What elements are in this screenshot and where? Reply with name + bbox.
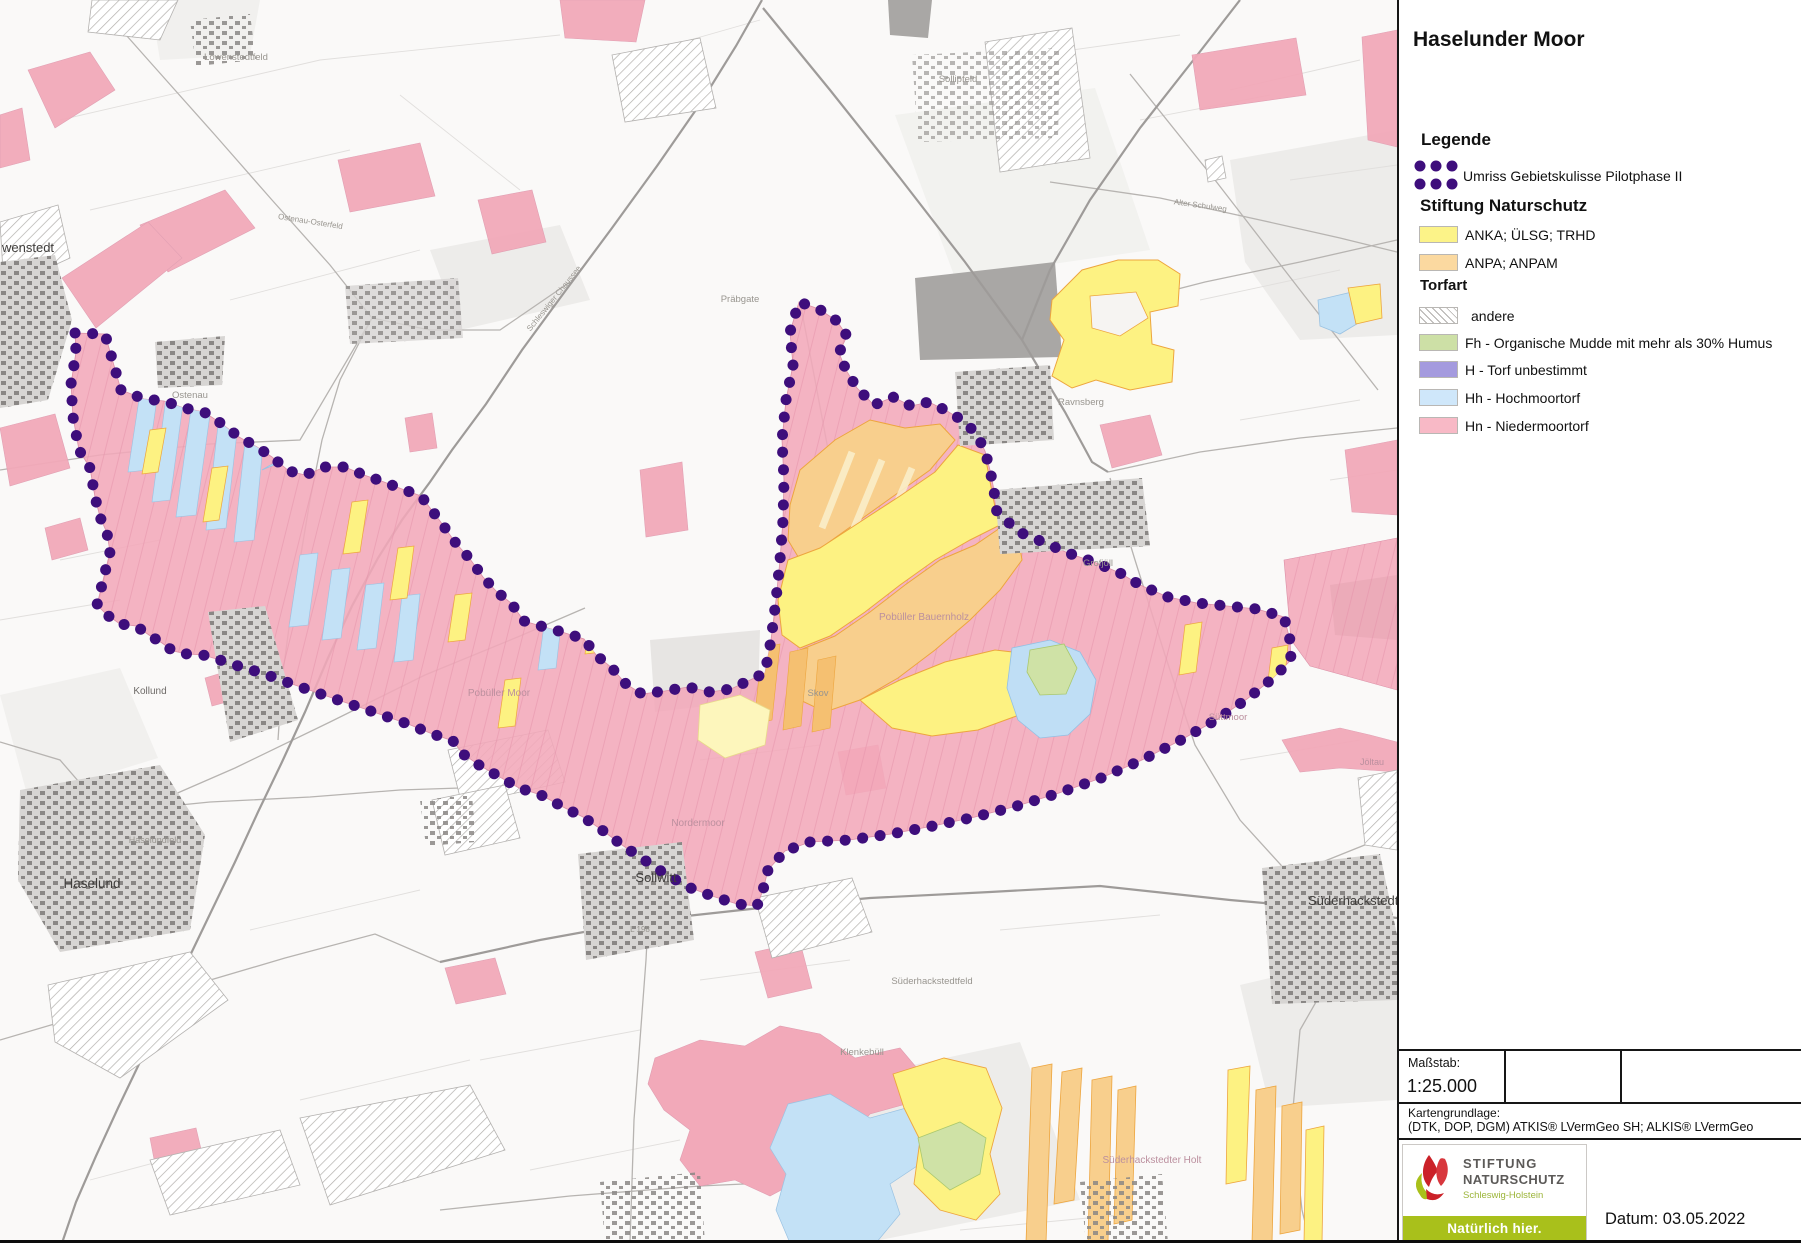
map-label: Skov — [807, 688, 828, 699]
info-panel: Haselunder Moor Legende Umriss Gebietsku… — [1397, 0, 1801, 1243]
hn-label: Hn - Niedermoortorf — [1465, 418, 1589, 434]
basemap-value: (DTK, DOP, DGM) ATKIS® LVermGeo SH; ALKI… — [1408, 1120, 1753, 1134]
map-label: Ostenau — [172, 390, 208, 401]
map-label: wenstedt — [1, 240, 54, 255]
empty-cell-2 — [1622, 1051, 1801, 1102]
map-label: Süderhackstedtfeld — [891, 976, 972, 987]
hh-label: Hh - Hochmoortorf — [1465, 390, 1580, 406]
basemap-row: Kartengrundlage: (DTK, DOP, DGM) ATKIS® … — [1399, 1104, 1801, 1140]
map-label: Klenkebüll — [840, 1047, 884, 1058]
map-label: Süderhackstedt — [1308, 893, 1397, 908]
map-label: Jöltau — [1360, 757, 1384, 767]
date-label: Datum: 03.05.2022 — [1605, 1210, 1745, 1229]
map-label: L 198 — [630, 925, 650, 934]
map-label: Pobüller Moor — [468, 688, 531, 699]
empty-cell-1 — [1506, 1051, 1622, 1102]
village-sollwitt — [578, 842, 694, 960]
map-area: wenstedtLöwenstedtfeldOstenauPräbgateSol… — [0, 0, 1397, 1243]
map-label: Sollipfeld — [939, 74, 978, 85]
scale-cell: Maßstab: 1:25.000 — [1399, 1051, 1506, 1102]
anpa-swatch — [1419, 254, 1458, 271]
map-label: Nordermoor — [671, 818, 725, 829]
legend-outline-label: Umriss Gebietskulisse Pilotphase II — [1463, 168, 1682, 184]
scale-value: 1:25.000 — [1407, 1076, 1477, 1097]
fh-label: Fh - Organische Mudde mit mehr als 30% H… — [1465, 335, 1772, 351]
map-label: Süttmoor — [1209, 712, 1248, 723]
map-label: Süderhackstedter Holt — [1103, 1155, 1202, 1166]
andere-label: andere — [1471, 308, 1515, 324]
boundary-dots-icon — [1412, 156, 1460, 194]
logo-line1: STIFTUNG — [1463, 1156, 1538, 1171]
village-suederhackstedt — [1262, 854, 1397, 1004]
map-label: Haselund — [63, 876, 120, 891]
tulip-leaf-icon — [1410, 1151, 1454, 1209]
scale-label: Maßstab: — [1408, 1056, 1460, 1070]
logo-line3: Schleswig-Holstein — [1463, 1190, 1543, 1201]
stiftung-naturschutz-logo: STIFTUNG NATURSCHUTZ Schleswig-Holstein … — [1402, 1144, 1587, 1242]
page-title: Haselunder Moor — [1413, 28, 1585, 52]
scale-row: Maßstab: 1:25.000 — [1399, 1051, 1801, 1104]
basemap-label: Kartengrundlage: — [1408, 1106, 1500, 1120]
h-label: H - Torf unbestimmt — [1465, 362, 1587, 378]
map-label: Sollwitt — [635, 870, 677, 885]
legend-heading: Legende — [1421, 130, 1491, 150]
map-label: Haselundfeld — [129, 835, 182, 845]
map-label: Pobüller Bauernholz — [879, 612, 969, 623]
map-export-page: wenstedtLöwenstedtfeldOstenauPräbgateSol… — [0, 0, 1801, 1243]
map-label: Kollund — [133, 686, 166, 697]
andere-swatch — [1419, 307, 1458, 324]
logo-row: STIFTUNG NATURSCHUTZ Schleswig-Holstein … — [1399, 1140, 1801, 1243]
village-ravnsberg — [955, 365, 1054, 446]
anpa-label: ANPA; ANPAM — [1465, 255, 1558, 271]
legend-stiftung-heading: Stiftung Naturschutz — [1420, 196, 1587, 216]
anka-swatch — [1419, 226, 1458, 243]
village-haselund — [18, 765, 205, 952]
info-box: Maßstab: 1:25.000 Kartengrundlage: (DTK,… — [1399, 1049, 1801, 1243]
map-label: Präbgate — [721, 294, 760, 305]
h-swatch — [1419, 361, 1458, 378]
hn-swatch — [1419, 417, 1458, 434]
logo-banner: Natürlich hier. — [1403, 1216, 1586, 1241]
fh-swatch — [1419, 334, 1458, 351]
map-label: Löwenstedtfeld — [204, 52, 268, 63]
map-label: Ravnsberg — [1058, 397, 1104, 408]
hh-swatch — [1419, 389, 1458, 406]
anka-label: ANKA; ÜLSG; TRHD — [1465, 227, 1595, 243]
map-canvas: wenstedtLöwenstedtfeldOstenauPräbgateSol… — [0, 0, 1397, 1243]
village-grofjoell — [995, 478, 1150, 554]
village-sollipfeld — [912, 48, 1060, 142]
logo-line2: NATURSCHUTZ — [1463, 1172, 1565, 1187]
legend-torfart-heading: Torfart — [1420, 277, 1467, 294]
map-label: Grofjöll — [1083, 558, 1113, 569]
